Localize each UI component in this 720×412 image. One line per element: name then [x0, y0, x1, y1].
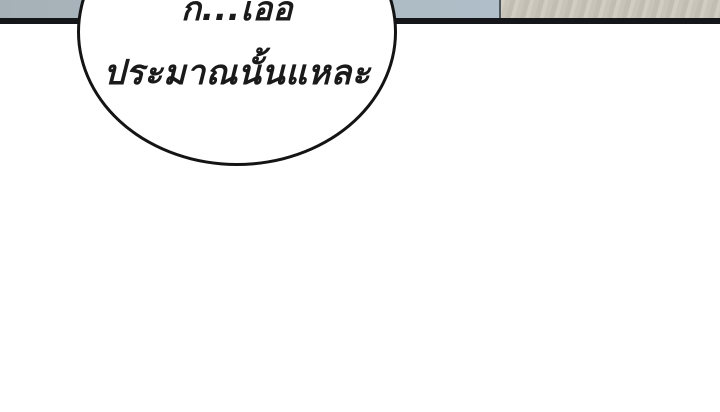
- comic-panel-area: ก...เออ ประมาณนั้นแหละ: [0, 0, 720, 412]
- panel-strip-beige-textured: [501, 0, 720, 18]
- speech-bubble-line-1: ก...เออ: [77, 0, 397, 32]
- speech-bubble-text: ก...เออ ประมาณนั้นแหละ: [77, 0, 397, 96]
- speech-bubble-line-2: ประมาณนั้นแหละ: [77, 50, 397, 96]
